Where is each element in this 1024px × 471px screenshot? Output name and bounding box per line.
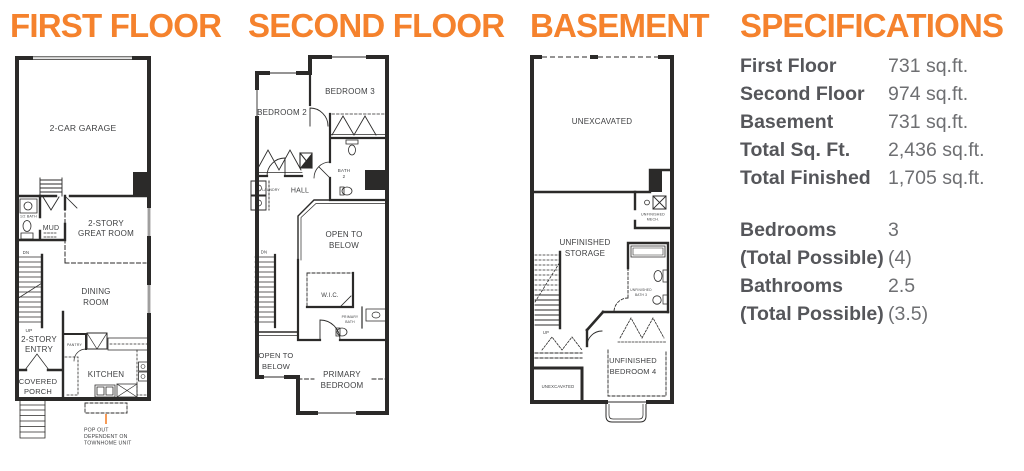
label-wic: W.I.C. [321,293,339,299]
basement-plan: UNEXCAVATED UNFINISHED MECH. UNFINISHED … [520,50,710,471]
spec-value: (4) [888,244,912,272]
label-great-room-2: GREAT ROOM [78,229,134,238]
floorplan-sheet: FIRST FLOOR SECOND FLOOR BASEMENT SPECIF… [0,0,1024,471]
label-kitchen: KITCHEN [88,370,125,379]
label-unexcavated-small: UNEXCAVATED [542,384,575,389]
spec-counts-group: Bedrooms 3 (Total Possible) (4) Bathroom… [740,216,1022,328]
spec-row-bathrooms: Bathrooms 2.5 [740,272,1022,300]
label-garage: 2-CAR GARAGE [50,123,117,133]
specifications-panel: First Floor 731 sq.ft. Second Floor 974 … [740,52,1022,328]
spec-areas-group: First Floor 731 sq.ft. Second Floor 974 … [740,52,1022,192]
spec-value: 3 [888,216,899,244]
label-open-below-a2: BELOW [329,241,359,250]
label-dining-1: DINING [81,287,110,296]
bath2-chase [365,170,387,190]
label-bedroom4-1: UNFINISHED [609,356,657,365]
label-porch-2: PORCH [24,387,52,396]
spec-value: 974 sq.ft. [888,80,968,108]
first-floor-plan: 2-CAR GARAGE 1/2 BATH MUD 2-STORY GREAT … [0,50,210,471]
label-storage-2: STORAGE [565,249,605,258]
label-entry-1: 2-STORY [21,335,57,344]
label-bath3-1: UNFINISHED [630,288,652,292]
spec-row-total-finished: Total Finished 1,705 sq.ft. [740,164,1022,192]
label-primary-bath-1: PRIMARY [342,315,359,319]
spec-row-bathrooms-possible: (Total Possible) (3.5) [740,300,1022,328]
label-unexcavated: UNEXCAVATED [572,117,632,126]
spec-value: 1,705 sq.ft. [888,164,984,192]
label-porch-1: COVERED [19,377,58,386]
spec-label: (Total Possible) [740,300,888,328]
label-bath2-2: 2 [343,174,346,179]
label-bath2-1: BATH [338,168,350,173]
spec-label: Total Finished [740,164,888,192]
label-dn2: DN [261,250,267,255]
label-dining-2: ROOM [83,298,109,307]
label-primary-bedroom-1: PRIMARY [323,370,361,379]
label-pantry: PANTRY [67,343,83,347]
label-bedroom4-2: BEDROOM 4 [610,367,657,376]
first-floor-title: FIRST FLOOR [10,9,221,43]
spec-label: First Floor [740,52,888,80]
label-entry-2: ENTRY [25,345,53,354]
spec-label: Total Sq. Ft. [740,136,888,164]
spec-label: Basement [740,108,888,136]
label-open-below-b2: BELOW [262,362,291,371]
spec-value: 2.5 [888,272,915,300]
label-popout-1: POP OUT [84,428,109,434]
label-dn: DN [23,250,29,255]
label-great-room-1: 2-STORY [88,219,124,228]
label-half-bath: 1/2 BATH [20,215,37,219]
label-primary-bedroom-2: BEDROOM [321,381,364,390]
second-floor-plan: BEDROOM 2 BEDROOM 3 BATH 2 LAUNDRY HALL … [240,50,440,471]
spec-value: (3.5) [888,300,928,328]
label-primary-bath-2: BATH [345,320,355,324]
label-bedroom2: BEDROOM 2 [257,108,307,117]
label-open-below-b1: OPEN TO [259,351,294,360]
spec-value: 2,436 sq.ft. [888,136,984,164]
spec-row-first-floor: First Floor 731 sq.ft. [740,52,1022,80]
label-up-basement: UP [543,330,549,335]
label-bath3-2: BATH 3 [635,293,647,297]
label-popout-2: DEPENDENT ON [84,434,128,440]
spec-row-bedrooms: Bedrooms 3 [740,216,1022,244]
basement-structural-notch [650,170,662,192]
label-laundry: LAUNDRY [262,188,280,192]
spec-row-total-sqft: Total Sq. Ft. 2,436 sq.ft. [740,136,1022,164]
garage-structural-notch [133,172,149,196]
specifications-title: SPECIFICATIONS [740,9,1003,43]
basement-title: BASEMENT [530,9,709,43]
spec-label: Bedrooms [740,216,888,244]
spec-value: 731 sq.ft. [888,52,968,80]
spec-label: Second Floor [740,80,888,108]
spec-row-bedrooms-possible: (Total Possible) (4) [740,244,1022,272]
label-popout-3: TOWNHOME UNIT [84,441,132,447]
label-mech-1: UNFINISHED [641,213,665,217]
spec-row-basement: Basement 731 sq.ft. [740,108,1022,136]
second-floor-title: SECOND FLOOR [248,9,504,43]
spec-row-second-floor: Second Floor 974 sq.ft. [740,80,1022,108]
label-up: UP [25,328,32,334]
label-storage-1: UNFINISHED [560,238,611,247]
label-bedroom3: BEDROOM 3 [325,87,375,96]
label-mud: MUD [43,225,60,232]
spec-value: 731 sq.ft. [888,108,968,136]
label-open-below-a1: OPEN TO [325,230,362,239]
spec-label: (Total Possible) [740,244,888,272]
label-mech-2: MECH. [647,218,660,222]
spec-label: Bathrooms [740,272,888,300]
label-hall: HALL [291,188,309,195]
